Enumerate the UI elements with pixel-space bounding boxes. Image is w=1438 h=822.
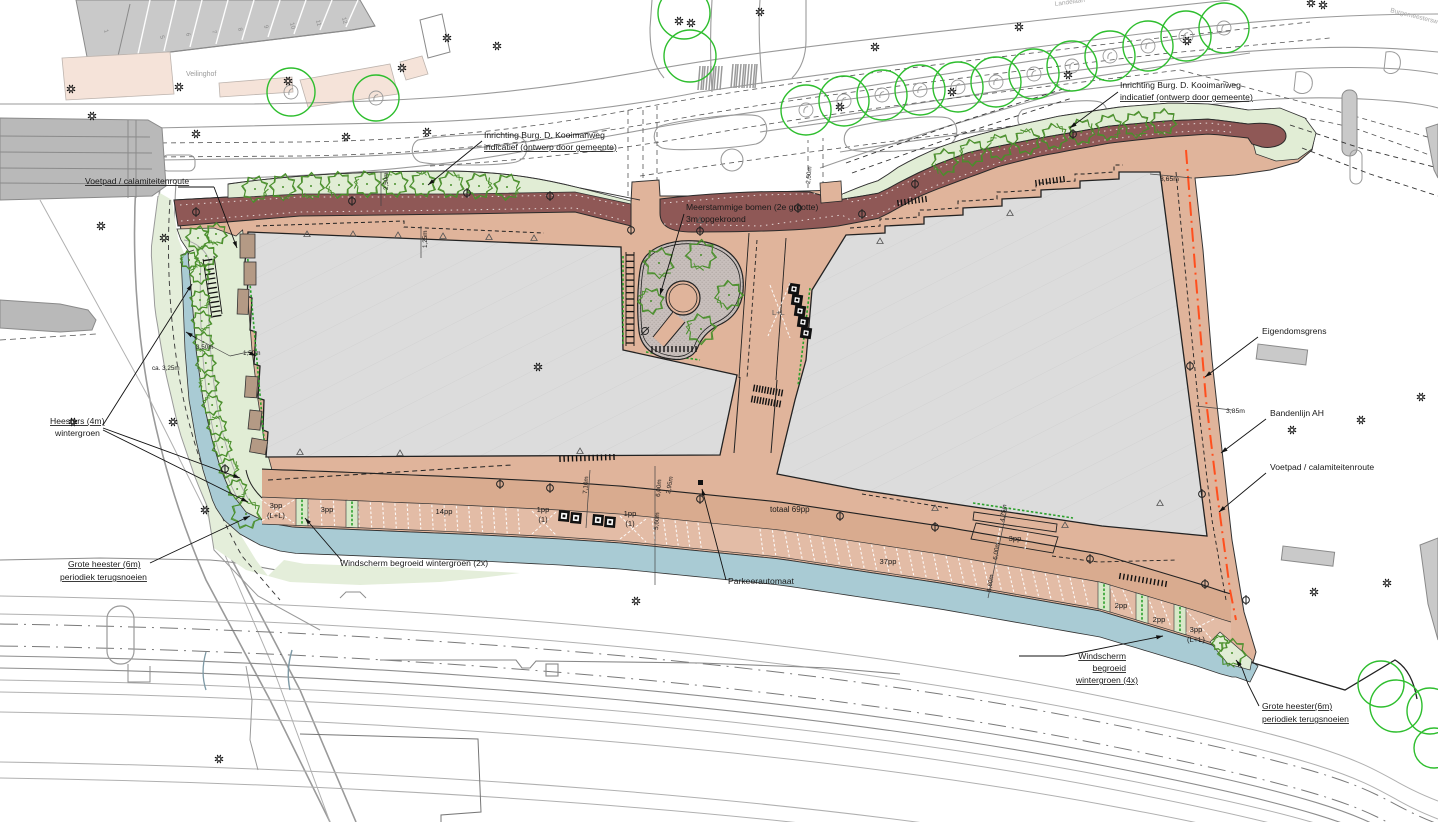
svg-text:(L+L): (L+L) bbox=[1187, 635, 1205, 644]
svg-text:Bandenlijn AH: Bandenlijn AH bbox=[1270, 408, 1324, 418]
svg-text:2pp: 2pp bbox=[1153, 615, 1166, 624]
svg-text:Grote heester (6m): Grote heester (6m) bbox=[68, 559, 141, 569]
svg-text:wintergroen: wintergroen bbox=[54, 428, 100, 438]
svg-text:Voetpad / calamiteitenroute: Voetpad / calamiteitenroute bbox=[85, 176, 189, 186]
svg-text:3m opgekroond: 3m opgekroond bbox=[686, 214, 746, 224]
svg-text:3,85m: 3,85m bbox=[1226, 408, 1245, 415]
svg-text:Voetpad / calamiteitenroute: Voetpad / calamiteitenroute bbox=[1270, 462, 1374, 472]
svg-text:ca. 3,25m: ca. 3,25m bbox=[152, 365, 180, 372]
svg-text:Meerstammige bomen (2e grootte: Meerstammige bomen (2e grootte) bbox=[686, 202, 818, 212]
svg-text:Veilinghof: Veilinghof bbox=[186, 71, 216, 78]
svg-text:begroeid: begroeid bbox=[1093, 663, 1127, 673]
svg-text:6,00m: 6,00m bbox=[655, 479, 663, 497]
svg-text:3,50m: 3,50m bbox=[196, 344, 214, 351]
svg-text:Parkeerautomaat: Parkeerautomaat bbox=[728, 576, 795, 586]
svg-text:3pp: 3pp bbox=[321, 505, 334, 514]
svg-text:5,60m: 5,60m bbox=[653, 512, 661, 530]
svg-text:wintergroen (4x): wintergroen (4x) bbox=[1075, 675, 1138, 685]
svg-text:1,25m: 1,25m bbox=[422, 230, 429, 248]
svg-text:Grote heester(6m): Grote heester(6m) bbox=[1262, 701, 1332, 711]
svg-text:2,50m: 2,50m bbox=[383, 172, 390, 190]
svg-text:Eigendomsgrens: Eigendomsgrens bbox=[1262, 326, 1327, 336]
svg-text:(1): (1) bbox=[538, 515, 548, 524]
svg-text:2pp: 2pp bbox=[1115, 601, 1128, 610]
svg-text:3pp: 3pp bbox=[1009, 534, 1022, 543]
svg-text:indicatief (ontwerp door gemee: indicatief (ontwerp door gemeente) bbox=[1120, 92, 1253, 102]
svg-text:14pp: 14pp bbox=[436, 507, 453, 516]
svg-text:periodiek terugsnoeien: periodiek terugsnoeien bbox=[60, 572, 147, 582]
svg-text:Inrichting Burg. D. Kooimanweg: Inrichting Burg. D. Kooimanweg bbox=[484, 130, 605, 140]
svg-text:1pp: 1pp bbox=[537, 505, 550, 514]
svg-text:37pp: 37pp bbox=[880, 557, 897, 566]
svg-text:Windscherm begroeid wintergroe: Windscherm begroeid wintergroen (2x) bbox=[340, 558, 488, 568]
svg-text:(L+L): (L+L) bbox=[267, 511, 285, 520]
svg-text:3pp: 3pp bbox=[1190, 625, 1203, 634]
svg-text:3,65m: 3,65m bbox=[1160, 176, 1179, 183]
svg-text:1pp: 1pp bbox=[624, 509, 637, 518]
svg-text:totaal 69pp: totaal 69pp bbox=[770, 505, 810, 514]
svg-text:3pp: 3pp bbox=[270, 501, 283, 510]
svg-text:(1): (1) bbox=[625, 519, 635, 528]
svg-text:Inrichting Burg. D. Kooimanweg: Inrichting Burg. D. Kooimanweg bbox=[1120, 80, 1241, 90]
svg-text:periodiek terugsnoeien: periodiek terugsnoeien bbox=[1262, 714, 1349, 724]
svg-text:indicatief (ontwerp door gemee: indicatief (ontwerp door gemeente) bbox=[484, 142, 617, 152]
svg-text:L+L: L+L bbox=[772, 308, 785, 317]
svg-text:Heesters (4m): Heesters (4m) bbox=[50, 416, 105, 426]
svg-text:Windscherm: Windscherm bbox=[1078, 651, 1126, 661]
